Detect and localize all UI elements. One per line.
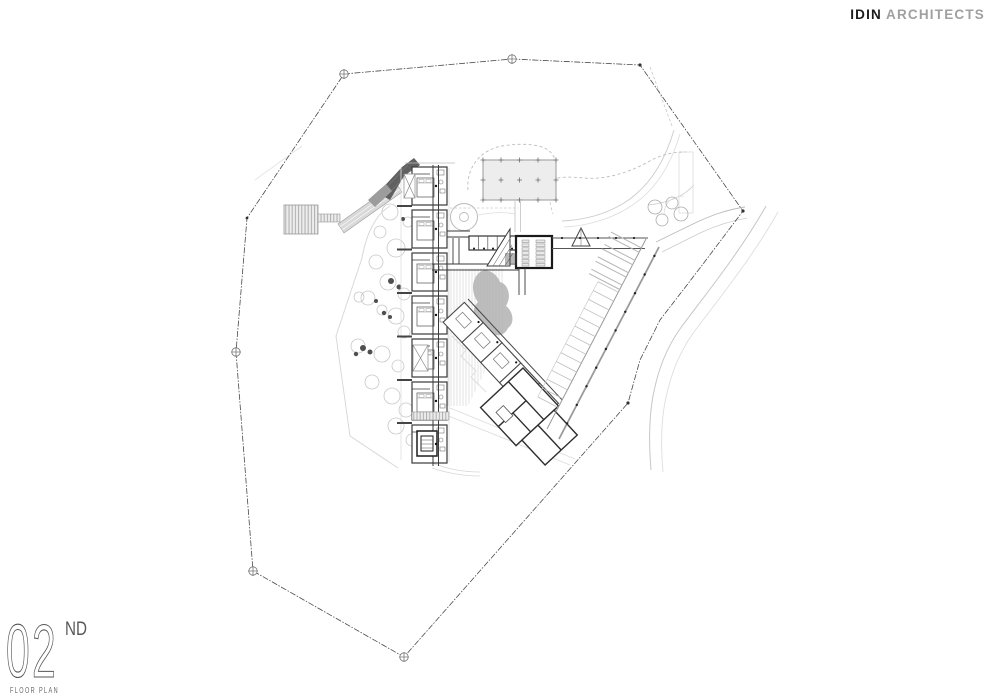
floor-plan-drawing: 02 ND FLOOR PLAN bbox=[0, 0, 1000, 698]
deck-and-ramp bbox=[284, 158, 420, 234]
canopy-roof bbox=[468, 144, 686, 232]
brand-logo: IDINARCHITECTS bbox=[850, 7, 985, 22]
dropoff-circle bbox=[436, 204, 516, 231]
presentation-sheet: IDINARCHITECTS bbox=[0, 0, 1000, 698]
floor-ordinal: ND bbox=[65, 619, 87, 640]
floor-number: 02 bbox=[6, 609, 58, 693]
floor-plan-label: FLOOR PLAN bbox=[10, 686, 59, 695]
brand-name-bold: IDIN bbox=[850, 7, 882, 22]
title-block: 02 ND FLOOR PLAN bbox=[6, 609, 87, 695]
brand-name-light: ARCHITECTS bbox=[886, 7, 985, 22]
